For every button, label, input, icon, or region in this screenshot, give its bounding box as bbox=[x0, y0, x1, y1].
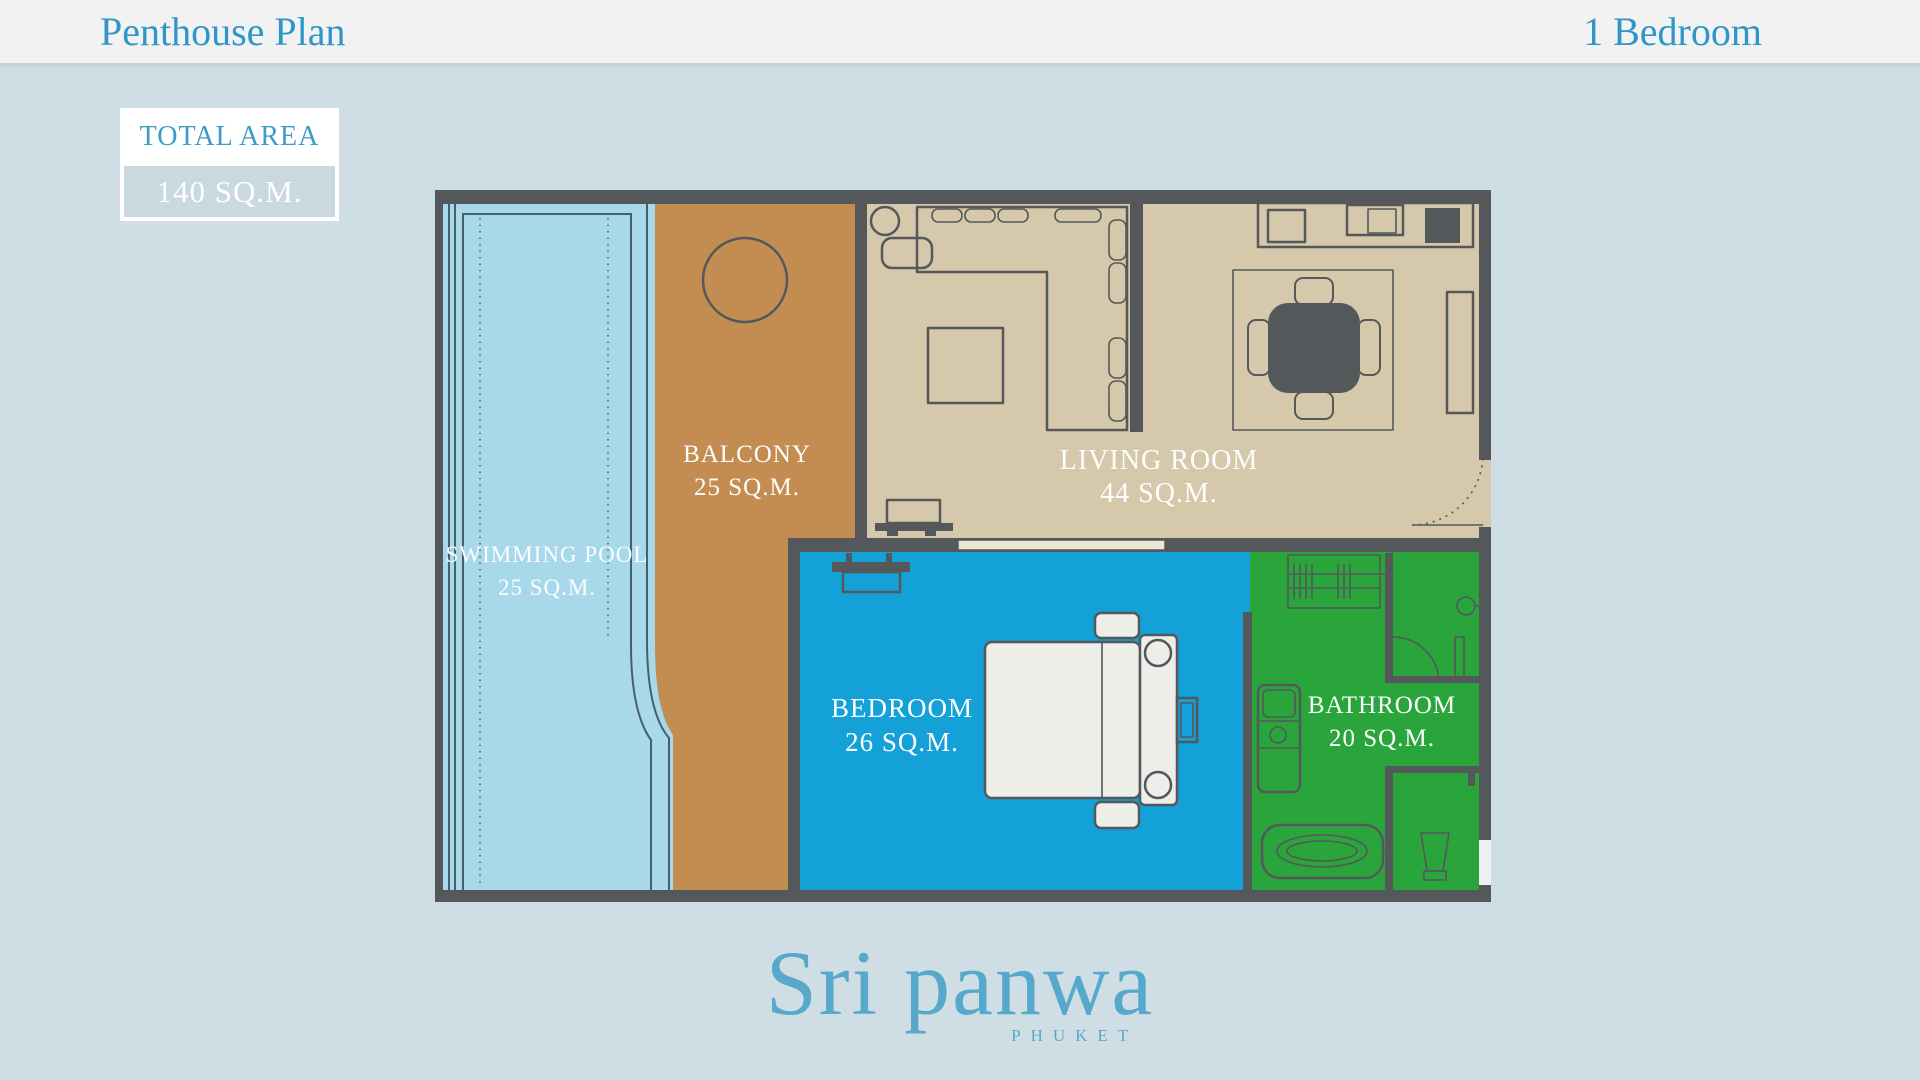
wall-shower-bottom bbox=[1385, 676, 1479, 683]
header-bar: Penthouse Plan 1 Bedroom bbox=[0, 0, 1920, 67]
floor-plan: SWIMMING POOL 25 SQ.M. BALCONY 25 SQ.M. … bbox=[435, 190, 1491, 902]
nightstand-symbol bbox=[1095, 802, 1139, 828]
dining-chair-symbol bbox=[1295, 392, 1333, 419]
bedroom-area: 26 SQ.M. bbox=[845, 727, 959, 757]
bathroom-label: BATHROOM bbox=[1308, 692, 1456, 719]
dining-chair-symbol bbox=[1248, 320, 1270, 375]
balcony-label: BALCONY bbox=[683, 441, 811, 468]
wall-balcony-living bbox=[855, 204, 867, 552]
total-area-value: 140 SQ.M. bbox=[120, 166, 339, 221]
balcony-area: 25 SQ.M. bbox=[694, 474, 800, 501]
bedroom-count-label: 1 Bedroom bbox=[1583, 8, 1762, 55]
service-door-gap bbox=[1479, 840, 1491, 885]
brand-name: Sri panwa bbox=[766, 935, 1154, 1032]
brand-logo: Sri panwa PHUKET bbox=[0, 935, 1920, 1046]
bathroom-area: 20 SQ.M. bbox=[1329, 725, 1435, 752]
wall-living-divider bbox=[1130, 204, 1143, 432]
dining-chair-symbol bbox=[1295, 278, 1333, 305]
page: Penthouse Plan 1 Bedroom TOTAL AREA 140 … bbox=[0, 0, 1920, 1080]
wall-toilet-left bbox=[1385, 773, 1393, 890]
dining-chair-symbol bbox=[1358, 320, 1380, 375]
bedroom-label: BEDROOM bbox=[831, 693, 973, 723]
living-room-label: LIVING ROOM bbox=[1060, 445, 1258, 476]
swimming-pool-area: 25 SQ.M. bbox=[498, 575, 596, 600]
nightstand-symbol bbox=[1095, 613, 1139, 638]
wall-toilet-top bbox=[1385, 766, 1479, 773]
swimming-pool-label: SWIMMING POOL bbox=[446, 542, 649, 567]
wall-bedroom-bathroom bbox=[1243, 612, 1252, 890]
bed-symbol bbox=[985, 613, 1197, 828]
wall-shower-left bbox=[1385, 553, 1393, 683]
sliding-door-symbol bbox=[958, 540, 1165, 550]
wall-balcony-bedroom bbox=[788, 538, 800, 890]
entry-door-gap bbox=[1479, 460, 1491, 527]
wall-toilet-notch bbox=[1468, 766, 1475, 786]
page-title: Penthouse Plan bbox=[100, 8, 346, 55]
total-area-box: TOTAL AREA 140 SQ.M. bbox=[120, 108, 339, 221]
total-area-label: TOTAL AREA bbox=[120, 108, 339, 166]
living-room-area: 44 SQ.M. bbox=[1100, 478, 1218, 509]
